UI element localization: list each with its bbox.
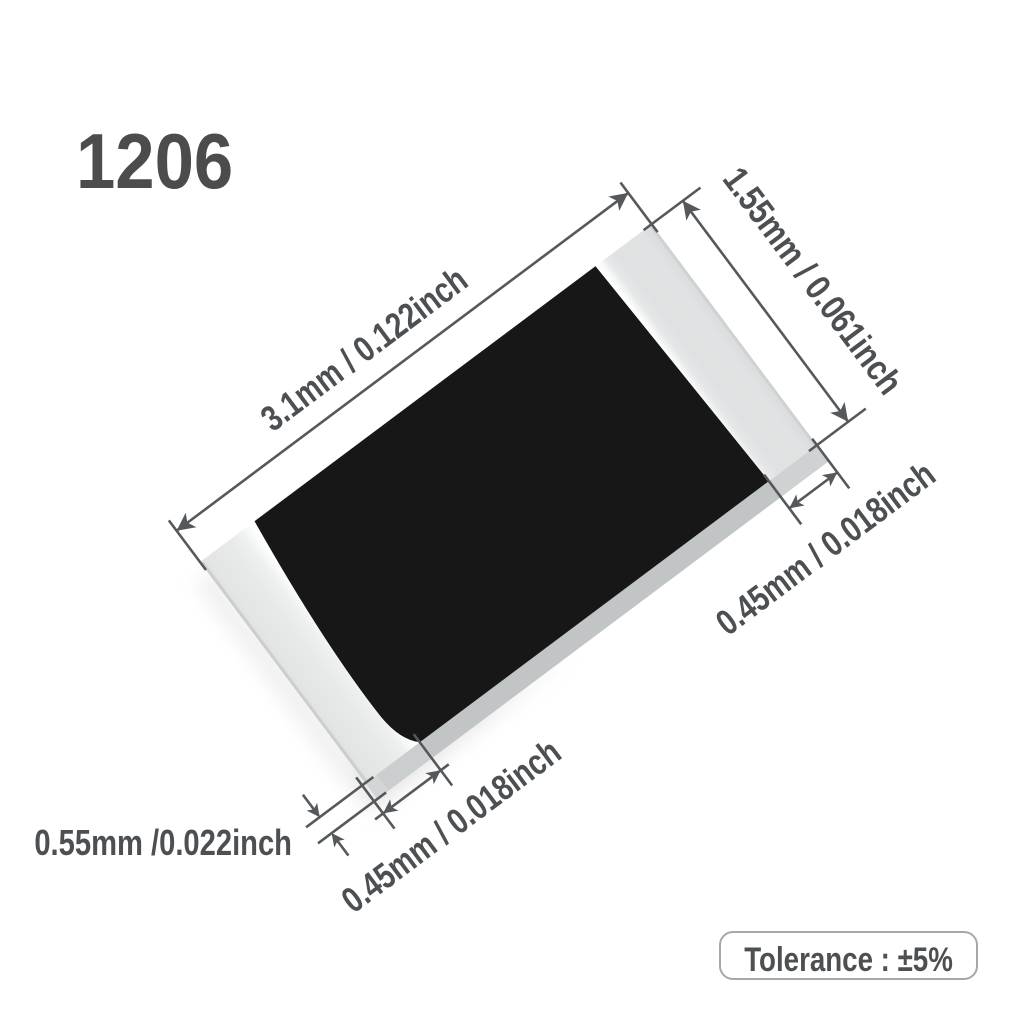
svg-text:1206: 1206 <box>76 118 233 205</box>
svg-text:Tolerance : ±5%: Tolerance : ±5% <box>744 940 953 978</box>
svg-text:0.55mm /0.022inch: 0.55mm /0.022inch <box>34 822 292 863</box>
